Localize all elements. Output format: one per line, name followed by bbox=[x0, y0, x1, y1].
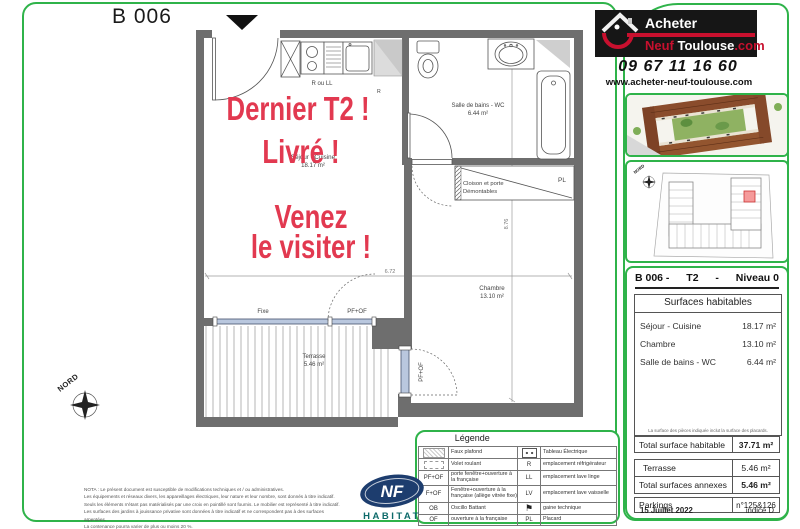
total-habitable-value: 37.71 m² bbox=[732, 437, 779, 452]
nota-text: NOTA : Le présent document est susceptib… bbox=[84, 486, 340, 529]
site-plan: NORD bbox=[625, 160, 789, 263]
unit-type: T2 bbox=[686, 272, 698, 284]
agency-phone: 09 67 11 16 60 bbox=[598, 58, 758, 76]
site-compass-rose: NORD bbox=[633, 163, 656, 189]
unit-info-panel: B 006 - T2 - Niveau 0 Surfaces habitable… bbox=[625, 266, 789, 520]
terrace-value: 5.46 m² bbox=[732, 460, 779, 476]
legend-label: Placard bbox=[541, 515, 617, 526]
terrace-floor bbox=[204, 326, 394, 417]
nota-line: Les équipements et réseaux divers, les a… bbox=[84, 493, 340, 500]
room-label-chambre: Chambre bbox=[479, 285, 505, 292]
total-habitable-row: Total surface habitable 37.71 m² bbox=[634, 436, 780, 453]
annex-table: Terrasse 5.46 m² Total surfaces annexes … bbox=[634, 459, 780, 494]
legend-code: PL bbox=[518, 515, 541, 526]
legend-symbol: ⚑ bbox=[518, 503, 541, 515]
legend: Légende Faux plafond Tableau Électrique … bbox=[415, 430, 620, 524]
surface-label: Chambre bbox=[640, 339, 675, 349]
promo-line-2: Livré ! bbox=[262, 135, 339, 168]
nf-label: NF bbox=[381, 482, 404, 501]
legend-label: gaine technique bbox=[541, 503, 617, 515]
unit-number: B 006 - bbox=[635, 272, 669, 284]
label-cloison-1: Cloison et porte bbox=[463, 181, 504, 187]
surface-row: Salle de bains - WC 6.44 m² bbox=[635, 357, 781, 367]
agency-website: www.acheter-neuf-toulouse.com bbox=[596, 77, 762, 88]
surfaces-table: Surfaces habitables Séjour - Cuisine 18.… bbox=[634, 294, 782, 436]
label-pf-of-terrace: PF+OF bbox=[347, 309, 367, 315]
site-plan-drawing: NORD bbox=[627, 162, 787, 261]
legend-code: LV bbox=[518, 486, 541, 503]
compass-nord-label: NORD bbox=[56, 372, 81, 394]
toilet bbox=[417, 41, 439, 53]
legend-label: Fenêtre+ouverture à la française (allège… bbox=[449, 486, 518, 503]
legend-label: Volet roulant bbox=[449, 459, 518, 471]
compass-rose: NORD bbox=[56, 372, 100, 420]
legend-label: porte fenêtre+ouverture à la française bbox=[449, 471, 518, 486]
flag-icon: ⚑ bbox=[525, 504, 533, 513]
unit-level: Niveau 0 bbox=[736, 272, 779, 284]
kitchen-fixtures bbox=[281, 40, 402, 77]
promo-line-4: le visiter ! bbox=[251, 230, 371, 263]
unit-dash: - bbox=[715, 272, 719, 284]
room-area-sdb: 6.44 m² bbox=[468, 111, 488, 117]
legend-label: emplacement lave linge bbox=[541, 471, 617, 486]
legend-label: emplacement lave vaisselle bbox=[541, 486, 617, 503]
surface-label: Salle de bains - WC bbox=[640, 357, 716, 367]
legend-symbol bbox=[518, 447, 541, 459]
label-cloison-2: Démontables bbox=[463, 189, 497, 195]
surface-row: Chambre 13.10 m² bbox=[635, 339, 781, 349]
aerial-render-illustration bbox=[627, 95, 787, 155]
legend-label: Tableau Électrique bbox=[541, 447, 617, 459]
surface-value: 6.44 m² bbox=[747, 357, 776, 367]
label-fixe: Fixe bbox=[257, 309, 269, 315]
legend-grid: Faux plafond Tableau Électrique Volet ro… bbox=[418, 446, 617, 526]
surface-value: 18.17 m² bbox=[742, 321, 776, 331]
legend-symbol bbox=[419, 447, 449, 459]
total-habitable-label: Total surface habitable bbox=[635, 440, 732, 450]
site-compass-nord-label: NORD bbox=[633, 163, 646, 175]
room-label-terrasse: Terrasse bbox=[302, 354, 326, 360]
aerial-photo bbox=[625, 93, 789, 157]
brand-dotcom: .com bbox=[734, 38, 764, 53]
room-area-terrasse: 5.46 m² bbox=[304, 362, 324, 368]
info-footer: 15 Juillet 2022 indice D bbox=[634, 506, 780, 515]
legend-label: Faux plafond bbox=[449, 447, 518, 459]
terrace-label: Terrasse bbox=[635, 463, 732, 473]
nota-line: Les surfaces des jardins à jouissance pr… bbox=[84, 508, 340, 523]
habitat-label: HABITAT bbox=[363, 511, 421, 522]
label-r: R bbox=[377, 89, 381, 95]
dim-height-label: 8.76 bbox=[504, 219, 510, 230]
plan-date: 15 Juillet 2022 bbox=[640, 506, 693, 515]
plan-indice: indice D bbox=[746, 506, 774, 515]
annex-total-label: Total surfaces annexes bbox=[635, 480, 732, 490]
legend-title: Légende bbox=[417, 432, 528, 446]
nota-line: Seuls les éléments n'étant pas matériali… bbox=[84, 501, 340, 508]
brand-neuf: Neuf bbox=[645, 38, 678, 53]
nota-line: NOTA : Le présent document est susceptib… bbox=[84, 486, 340, 493]
label-r-ou-ll: R ou LL bbox=[311, 81, 333, 87]
brand-toulouse: Toulouse bbox=[678, 38, 735, 53]
surfaces-title: Surfaces habitables bbox=[635, 295, 781, 313]
surface-value: 13.10 m² bbox=[742, 339, 776, 349]
legend-code: R bbox=[518, 459, 541, 471]
electrical-panel-icon bbox=[522, 448, 537, 458]
legend-code: LL bbox=[518, 471, 541, 486]
legend-label: Oscillo Battant bbox=[449, 503, 518, 515]
room-area-chambre: 13.10 m² bbox=[480, 294, 504, 300]
surfaces-note: La surface des pièces indiquée inclut la… bbox=[635, 428, 781, 433]
unit-header: B 006 - T2 - Niveau 0 bbox=[635, 272, 779, 289]
nf-habitat-logo: NF HABITAT bbox=[342, 467, 442, 525]
bathroom-fixtures bbox=[417, 39, 570, 159]
legend-label: ouverture à la française bbox=[449, 515, 518, 526]
nota-line: La contenance pourra varier de plus ou m… bbox=[84, 523, 340, 529]
brand-line2: Neuf Toulouse.com bbox=[645, 38, 765, 53]
label-pl: PL bbox=[558, 177, 566, 184]
promo-line-1: Dernier T2 ! bbox=[226, 92, 369, 125]
unit-highlight bbox=[744, 191, 755, 202]
brand-acheter: Acheter bbox=[645, 15, 697, 31]
brand-red-bar bbox=[627, 33, 755, 37]
plan-sheet: B 006 6.72 8.76 bbox=[0, 0, 800, 529]
room-label-sdb: Salle de bains - WC bbox=[451, 103, 505, 109]
dim-width-label: 6.72 bbox=[385, 269, 396, 275]
hatch-swatch-icon bbox=[423, 448, 445, 458]
agency-logo: Acheter Neuf Toulouse.com bbox=[595, 10, 757, 57]
label-pf-of-chambre: PF+OF bbox=[419, 362, 425, 382]
legend-label: emplacement réfrigérateur bbox=[541, 459, 617, 471]
surface-row: Séjour - Cuisine 18.17 m² bbox=[635, 321, 781, 331]
surface-label: Séjour - Cuisine bbox=[640, 321, 701, 331]
annex-total-value: 5.46 m² bbox=[732, 477, 779, 493]
entrance-marker-icon bbox=[226, 15, 258, 30]
